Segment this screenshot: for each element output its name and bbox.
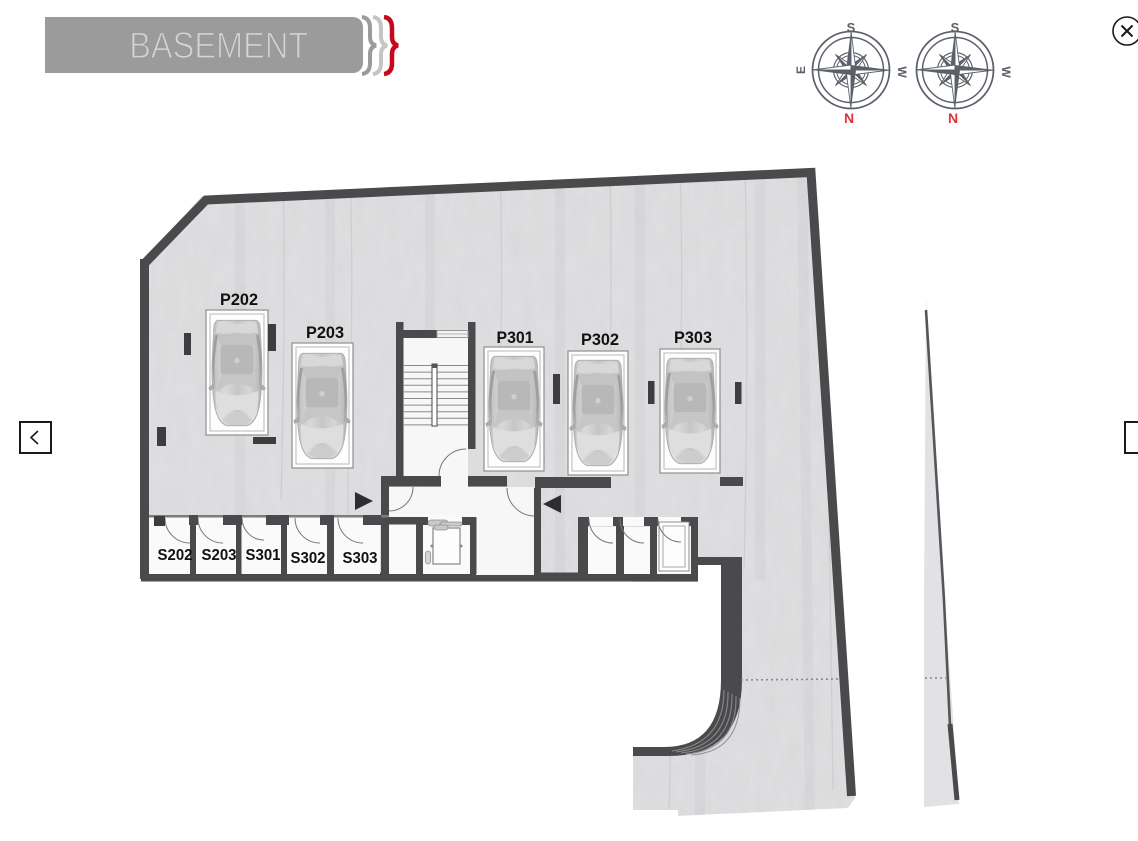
svg-text:P303: P303 bbox=[674, 328, 712, 347]
svg-text:S302: S302 bbox=[291, 550, 326, 567]
svg-text:S301: S301 bbox=[246, 547, 281, 564]
svg-text:P302: P302 bbox=[581, 330, 619, 349]
svg-text:S203: S203 bbox=[202, 547, 237, 564]
svg-text:P203: P203 bbox=[306, 323, 344, 342]
svg-text:P202: P202 bbox=[220, 290, 258, 309]
svg-text:S303: S303 bbox=[343, 550, 378, 567]
svg-text:S202: S202 bbox=[158, 547, 193, 564]
svg-text:P301: P301 bbox=[497, 328, 534, 347]
